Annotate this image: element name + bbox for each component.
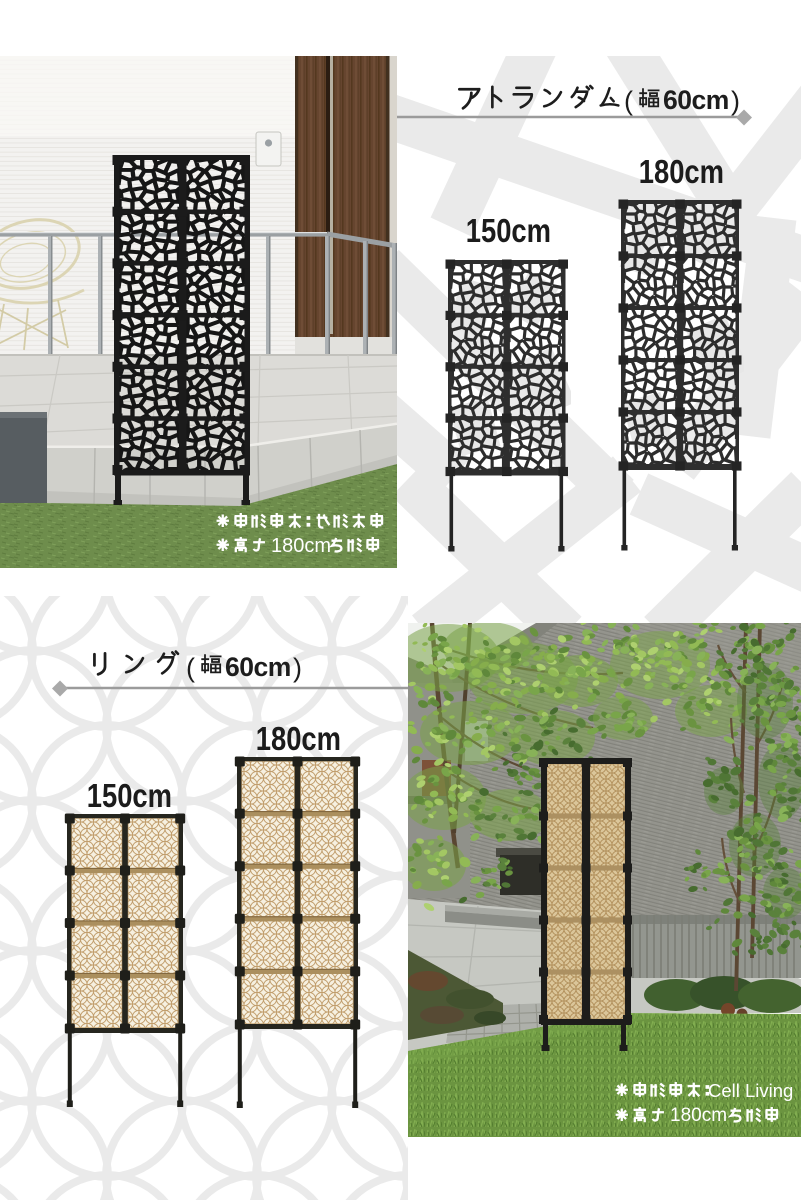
svg-text:(: ( bbox=[624, 86, 633, 116]
svg-text:180cm: 180cm bbox=[271, 535, 331, 557]
svg-text:(: ( bbox=[186, 653, 195, 683]
svg-text:): ) bbox=[293, 653, 302, 683]
svg-text:): ) bbox=[731, 86, 740, 116]
svg-text:Cell Living: Cell Living bbox=[708, 1080, 793, 1101]
svg-text:60cm: 60cm bbox=[225, 652, 291, 682]
svg-text:180cm: 180cm bbox=[670, 1105, 727, 1126]
svg-text:60cm: 60cm bbox=[663, 85, 729, 115]
